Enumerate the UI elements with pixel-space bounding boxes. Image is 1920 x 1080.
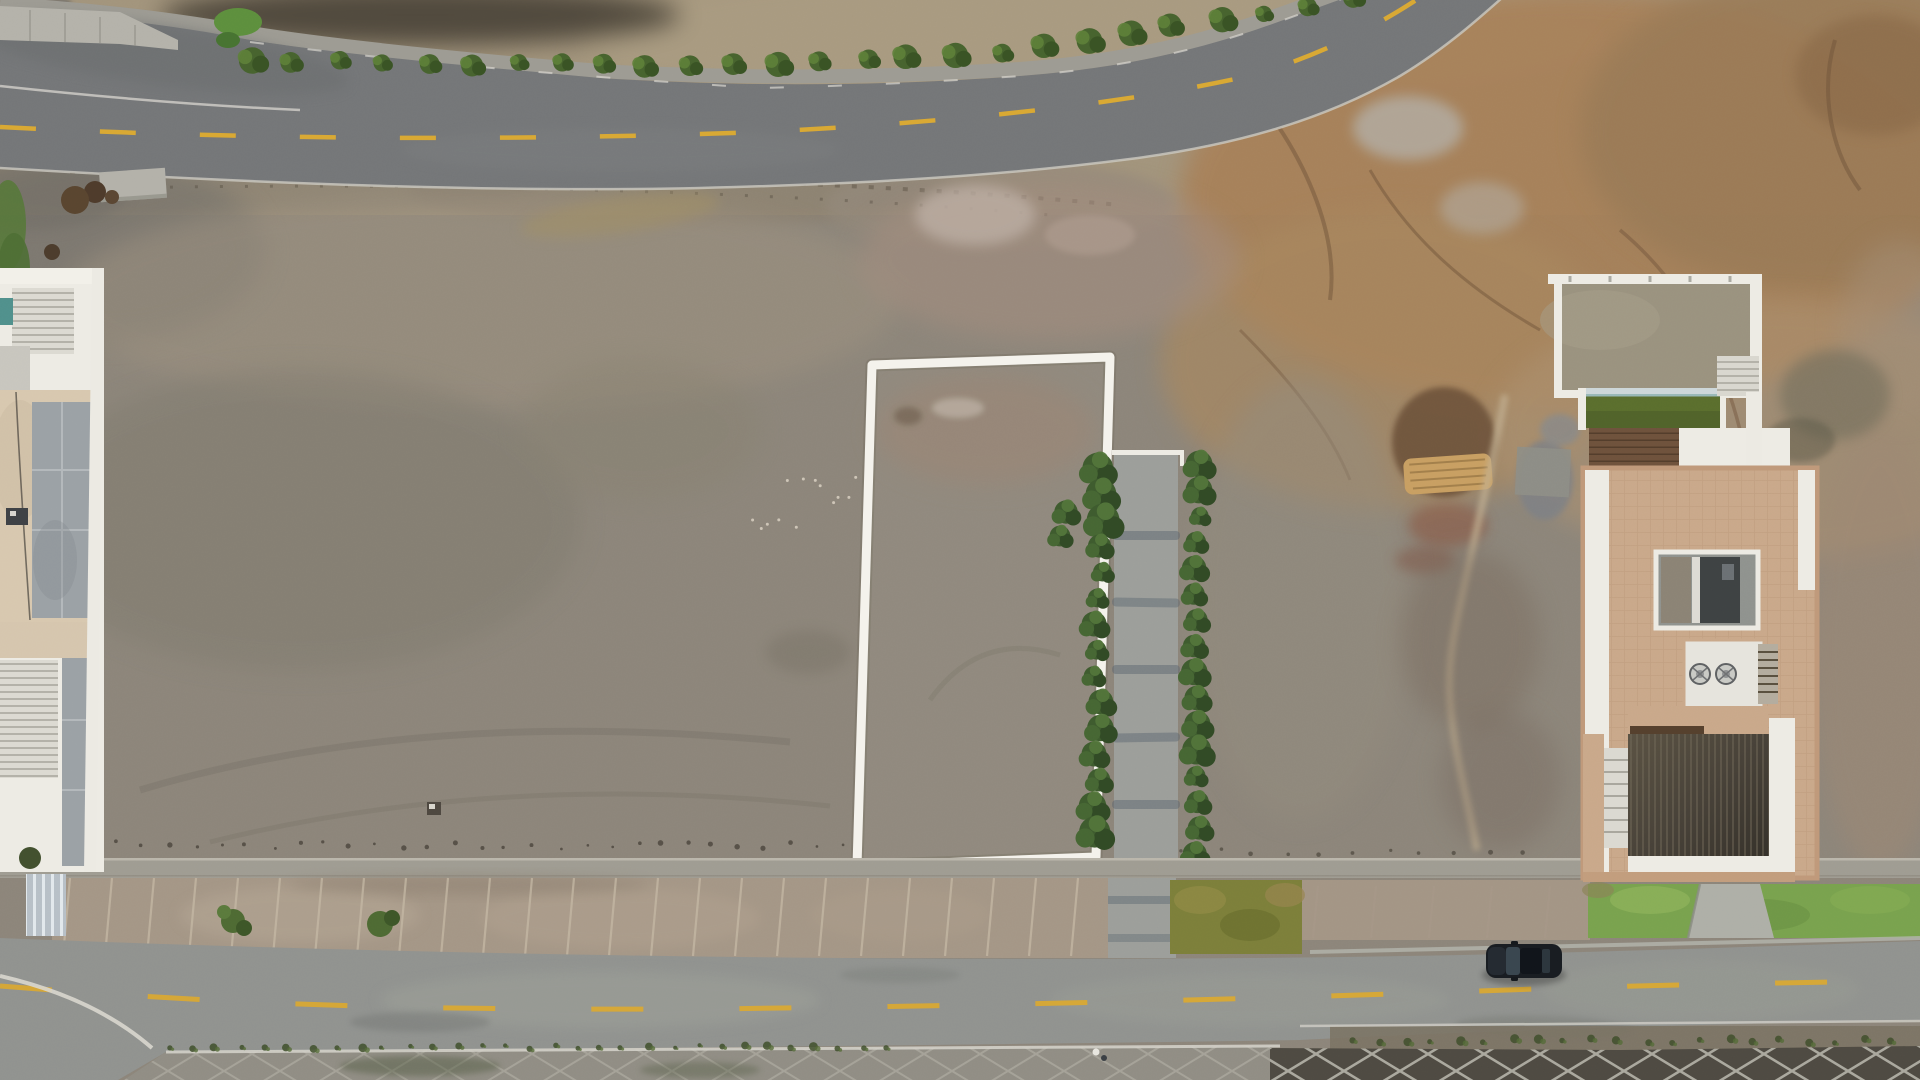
photo-grain	[0, 0, 1920, 1080]
scene-svg	[0, 0, 1920, 1080]
aerial-photo	[0, 0, 1920, 1080]
